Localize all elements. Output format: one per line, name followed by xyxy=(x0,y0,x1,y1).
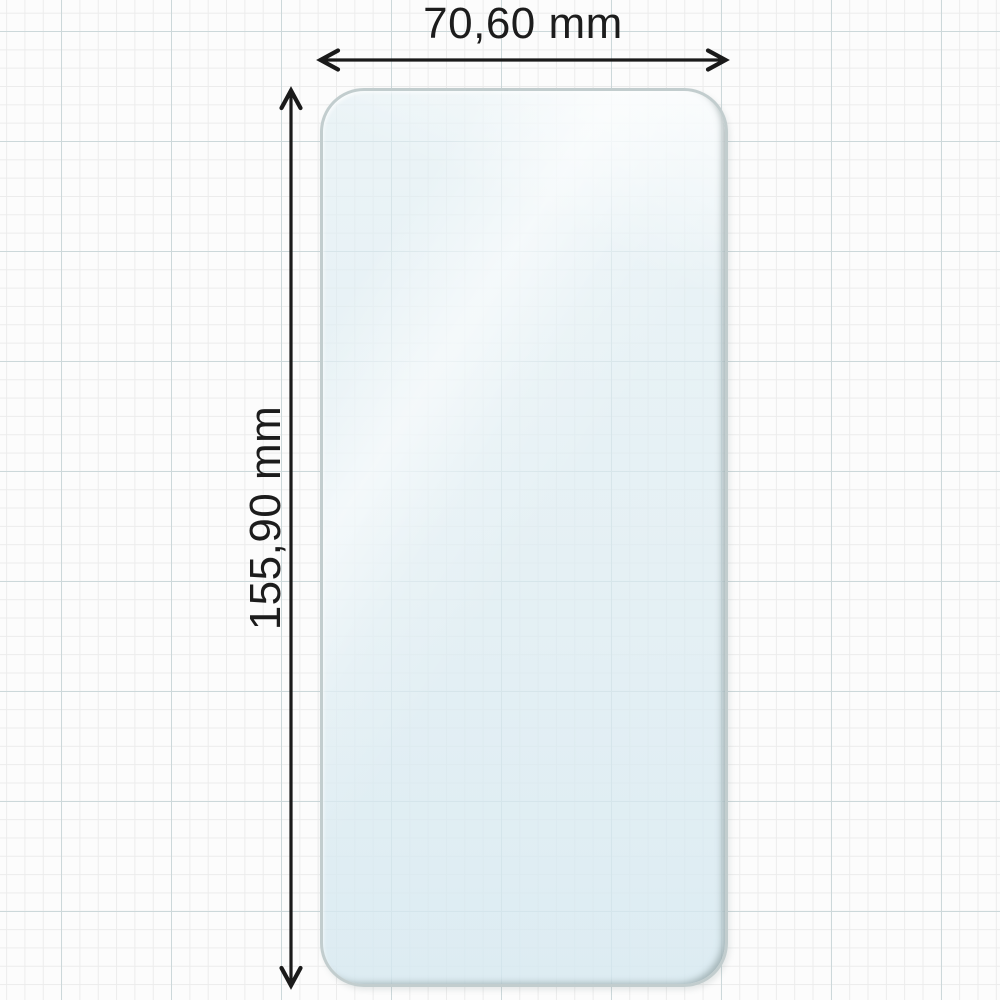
screen-protector-film xyxy=(320,88,728,987)
width-dimension-arrow-icon xyxy=(316,46,730,74)
width-dimension-label: 70,60 mm xyxy=(318,0,728,52)
height-dimension-arrow-icon xyxy=(277,86,305,990)
graph-paper-canvas: 70,60 mm 155,90 mm xyxy=(0,0,1000,1000)
